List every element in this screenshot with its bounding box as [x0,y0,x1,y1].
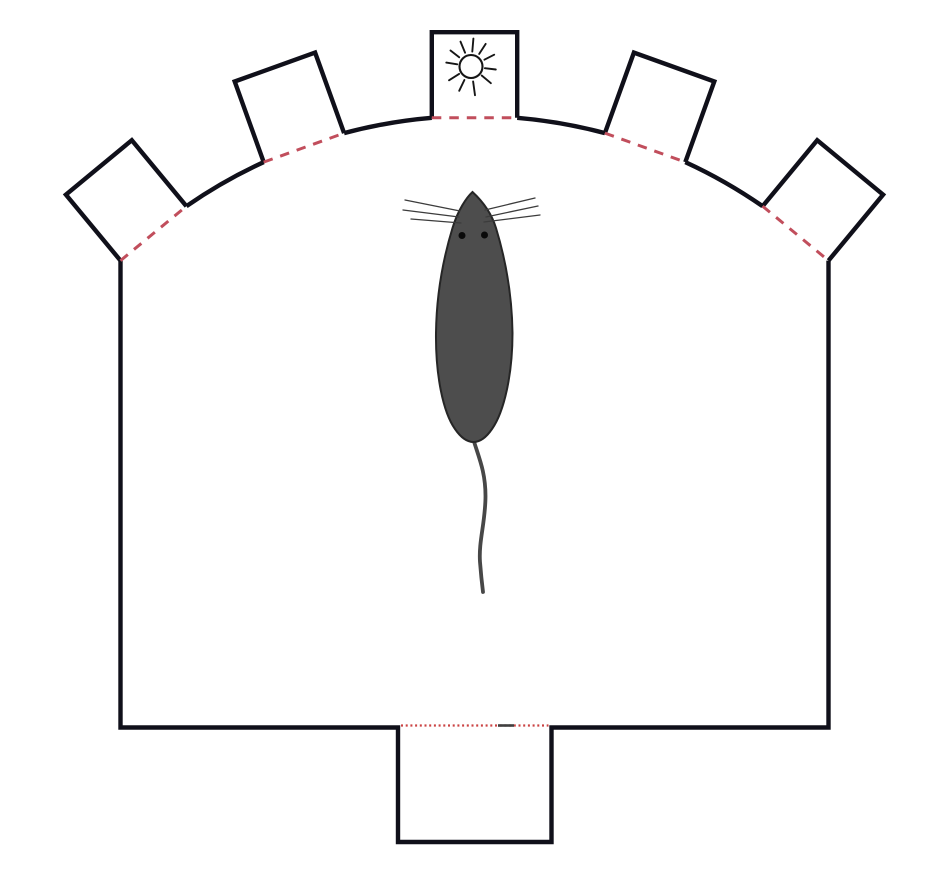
sun-ray-2 [461,42,466,53]
arc-wall-segment-3 [517,118,605,133]
shelter-box-5 [763,140,884,260]
entrance-dashed-line-1 [121,206,187,260]
sun-ray-6 [459,80,464,91]
mouse-tail [474,440,486,592]
entrance-dashed-line-4 [605,133,685,162]
entrance-dashed-line-5 [763,206,829,260]
entrance-dashed-line-2 [264,133,344,162]
mouse-eye-left [459,232,466,239]
mouse-whisker-3 [411,219,461,223]
shelter-box-3 [432,32,517,118]
shelter-box-4 [605,53,714,163]
shelter-box-1 [66,140,186,260]
sun-ray-1 [472,39,473,52]
sun-ray-11 [479,44,486,54]
mouse-figure [403,192,540,592]
arc-wall-segment-2 [344,118,432,133]
sun-ray-3 [451,51,460,58]
mouse-body [436,192,513,442]
shelter-box-2 [235,53,344,163]
mouse-whisker-1 [405,200,460,211]
arc-wall-segment-4 [685,162,762,206]
sun-icon [446,39,496,96]
figure-canvas [0,0,928,870]
sun-ray-8 [482,76,491,84]
arc-wall-segment-1 [186,162,263,206]
sun-disc [460,55,483,78]
mouse-eye-right [481,232,488,239]
sun-ray-5 [449,74,459,80]
sun-ray-4 [446,63,457,65]
arena-svg [0,0,928,870]
mouse-whisker-2 [403,210,459,217]
sun-ray-7 [473,81,475,95]
sun-ray-9 [485,68,496,69]
sun-ray-10 [484,55,494,60]
